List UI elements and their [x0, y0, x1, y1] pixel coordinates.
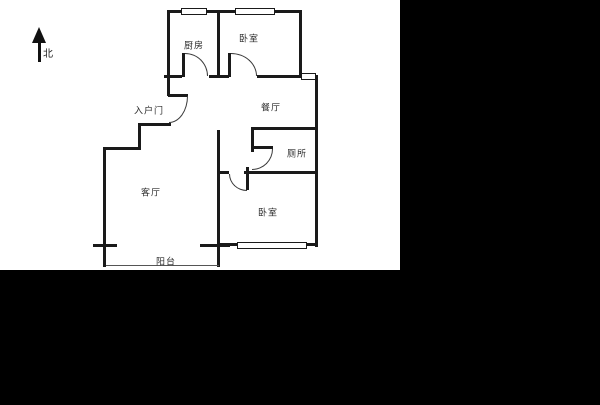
bedroom-north-window	[235, 8, 275, 15]
east-small-window	[301, 73, 316, 80]
room-label-entry-door: 入户门	[134, 104, 164, 117]
wall-bedroom-south-north-left	[218, 171, 229, 174]
entry-door-arc	[169, 96, 188, 123]
kitchen-door-arc	[185, 53, 208, 76]
floorplan-image: 北	[0, 0, 600, 405]
wall-bedroom-north-south-right	[257, 75, 302, 78]
room-label-kitchen: 厨房	[184, 39, 204, 52]
bedroom-north-door-arc	[231, 53, 257, 76]
bedroom-south-window	[237, 242, 307, 249]
wall-balcony-tick-left	[93, 244, 117, 247]
wall-bedroom-south-bottom-right	[306, 243, 318, 246]
wall-step-vertical	[138, 123, 141, 150]
wall-kitchen-west	[167, 10, 170, 78]
bedroom-south-door-arc	[229, 174, 247, 191]
wall-bedroom-south-north-right	[244, 171, 318, 174]
north-arrow-shaft	[38, 40, 41, 62]
wall-living-west	[103, 147, 106, 267]
wall-bedroom-north-east	[299, 10, 302, 78]
plan-area: 北	[0, 0, 400, 270]
north-label: 北	[43, 45, 53, 60]
room-label-bedroom-south: 卧室	[258, 206, 278, 219]
room-label-bedroom-north: 卧室	[239, 32, 259, 45]
wall-step-horizontal	[103, 147, 141, 150]
room-label-dining: 餐厅	[261, 101, 281, 114]
toilet-door-arc	[252, 149, 273, 170]
wall-entry-south	[138, 123, 171, 126]
wall-bedroom-south-bottom-left	[220, 243, 238, 246]
kitchen-window	[181, 8, 207, 15]
room-label-toilet: 厕所	[287, 147, 307, 160]
wall-kitchen-bedroom-divider	[217, 10, 220, 78]
wall-east	[315, 75, 318, 247]
room-label-balcony: 阳台	[156, 255, 176, 268]
wall-toilet-north	[252, 127, 318, 130]
room-label-living: 客厅	[141, 186, 161, 199]
